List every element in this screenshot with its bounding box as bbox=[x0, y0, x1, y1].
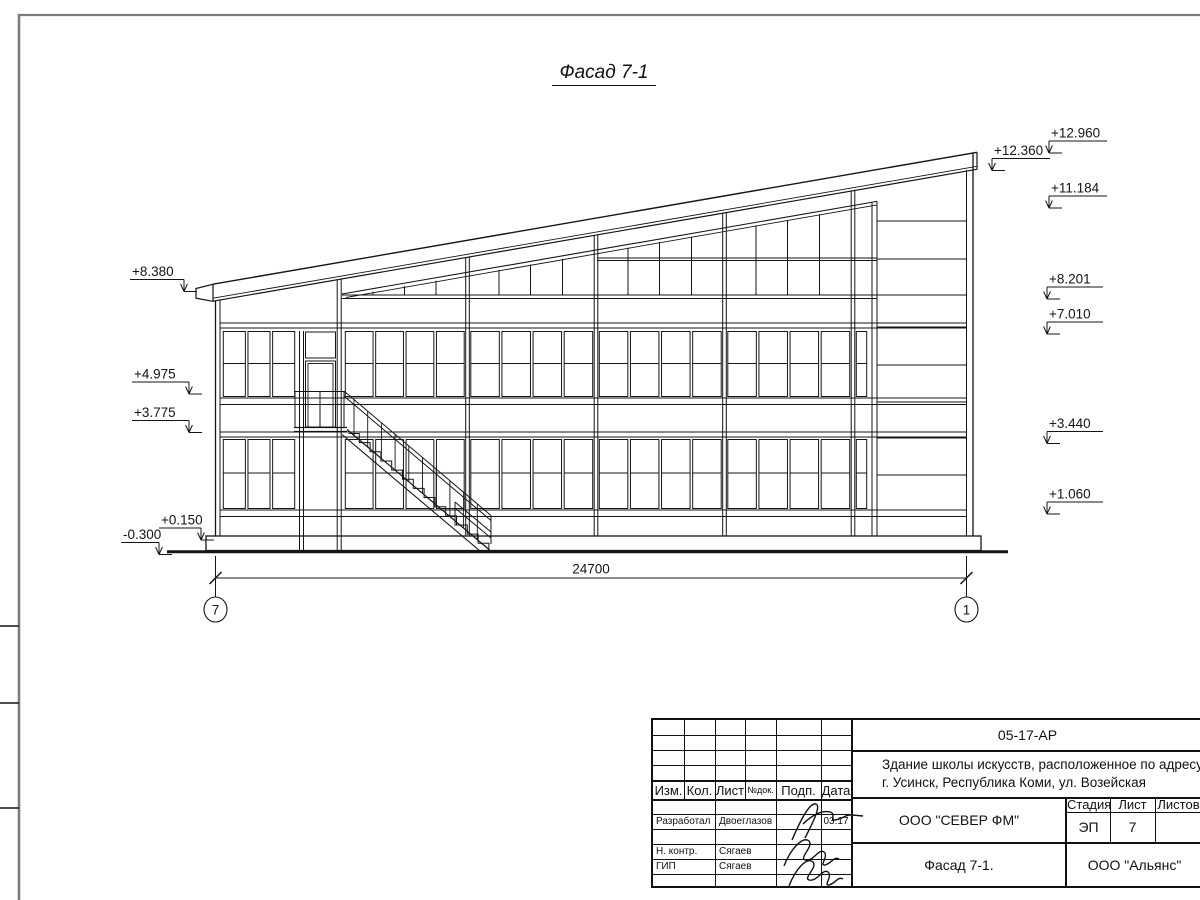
signatures bbox=[653, 720, 1200, 888]
svg-text:+12.960: +12.960 bbox=[1051, 126, 1100, 141]
stair bbox=[342, 392, 491, 553]
stair-core-band bbox=[872, 201, 966, 536]
elevation-mark: +3.775 bbox=[132, 405, 202, 433]
axis-bubbles: 71 bbox=[204, 578, 978, 622]
drawing-sheet: { "drawing": { "title": "Фасад 7-1", "di… bbox=[0, 0, 1200, 900]
svg-text:+3.440: +3.440 bbox=[1049, 416, 1091, 431]
signature-razrabotal bbox=[792, 804, 863, 840]
svg-text:24700: 24700 bbox=[572, 562, 610, 577]
svg-text:7: 7 bbox=[212, 603, 220, 618]
signature-nkontr bbox=[784, 840, 839, 866]
elevation-mark: +3.440 bbox=[1044, 416, 1103, 444]
elevation-mark: +12.960 bbox=[1046, 126, 1107, 154]
elevation-mark: +8.380 bbox=[130, 264, 197, 292]
svg-text:+8.380: +8.380 bbox=[132, 264, 174, 279]
svg-text:+3.775: +3.775 bbox=[134, 405, 176, 420]
svg-text:+12.360: +12.360 bbox=[994, 143, 1043, 158]
elevation-mark: +12.360 bbox=[989, 143, 1050, 171]
svg-text:+7.010: +7.010 bbox=[1049, 307, 1091, 322]
svg-text:-0.300: -0.300 bbox=[123, 527, 161, 542]
svg-text:+11.184: +11.184 bbox=[1051, 181, 1100, 196]
roof bbox=[196, 152, 977, 301]
stair-tower bbox=[294, 332, 347, 432]
svg-text:+0.150: +0.150 bbox=[161, 513, 203, 528]
dimension: 24700 bbox=[210, 556, 973, 592]
elevation-mark: +1.060 bbox=[1044, 487, 1103, 515]
svg-text:1: 1 bbox=[963, 603, 971, 618]
walls bbox=[167, 154, 1008, 552]
signature-gip bbox=[789, 861, 843, 886]
columns bbox=[300, 191, 855, 551]
elevation-mark: +4.975 bbox=[132, 367, 202, 395]
elevation-mark: -0.300 bbox=[121, 527, 172, 555]
elevation-mark: +7.010 bbox=[1044, 307, 1103, 335]
elevation-mark: +11.184 bbox=[1046, 181, 1107, 209]
svg-text:+8.201: +8.201 bbox=[1049, 272, 1091, 287]
elevation-mark: +8.201 bbox=[1044, 272, 1103, 300]
svg-text:+4.975: +4.975 bbox=[134, 367, 176, 382]
drawing-title: Фасад 7-1 bbox=[552, 62, 656, 86]
title-block: Изм. Кол. Лист №док. Подп. Дата Разработ… bbox=[651, 718, 1200, 888]
svg-text:+1.060: +1.060 bbox=[1049, 487, 1091, 502]
